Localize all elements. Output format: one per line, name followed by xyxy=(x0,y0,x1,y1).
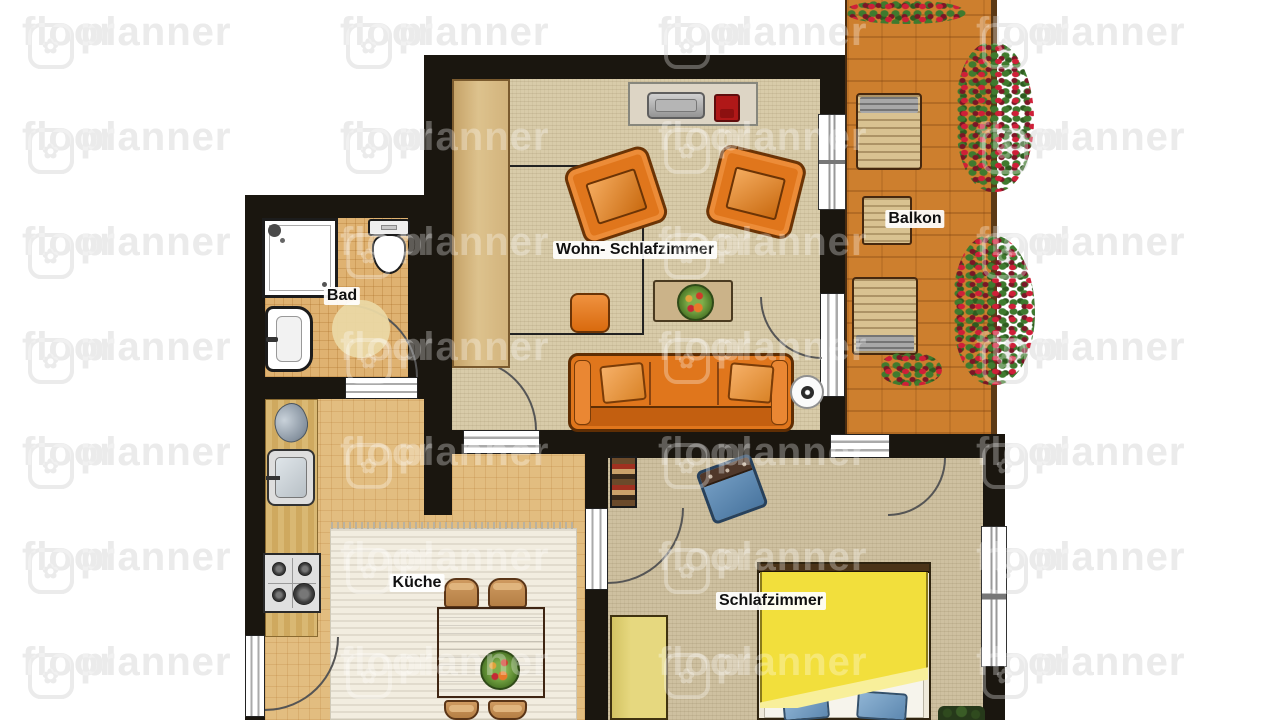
lounger-cushion xyxy=(860,97,918,113)
watermark: floor✿planner xyxy=(22,430,80,489)
toilet-bowl xyxy=(372,234,406,274)
room-label-bedroom: Schlafzimmer xyxy=(716,592,826,610)
shower-head-icon xyxy=(268,224,281,237)
balcony-lounger xyxy=(856,93,922,170)
floorplanner-logo-icon: ✿ xyxy=(28,653,74,699)
floorplanner-logo-icon: ✿ xyxy=(28,128,74,174)
watermark: floor✿planner xyxy=(22,10,80,69)
floorplanner-logo-icon: ✿ xyxy=(28,233,74,279)
sofa-pillow xyxy=(727,362,774,404)
sofa-back xyxy=(575,406,787,426)
burner xyxy=(293,583,315,605)
kitchen-sink xyxy=(267,449,315,506)
floorplanner-logo-icon: ✿ xyxy=(28,653,74,699)
floorplan-canvas: Wohn- Schlafzimmer Balkon Bad Küche Schl… xyxy=(0,0,1280,720)
watermark: floor✿planner xyxy=(22,640,80,699)
room-label-balcony: Balkon xyxy=(885,210,944,228)
wall xyxy=(245,377,345,399)
watermark: floor✿planner xyxy=(340,10,398,69)
watermark: floor✿planner xyxy=(340,10,398,69)
bed xyxy=(757,562,931,720)
wall xyxy=(890,434,1005,458)
sideboard xyxy=(628,82,758,126)
faucet-icon xyxy=(266,476,280,480)
floorplanner-logo-icon: ✿ xyxy=(28,233,74,279)
wall xyxy=(428,55,845,79)
burner xyxy=(272,588,286,602)
wall xyxy=(983,458,1005,530)
lounger-cushion xyxy=(856,335,914,351)
room-label-living: Wohn- Schlafzimmer xyxy=(553,241,717,259)
wall xyxy=(424,55,452,515)
flower-planter xyxy=(956,42,1034,192)
flower-planter xyxy=(880,352,942,386)
watermark: floor✿planner xyxy=(22,640,80,699)
floorplanner-logo-icon: ✿ xyxy=(346,128,392,174)
door-living xyxy=(463,430,540,454)
stove xyxy=(263,553,321,613)
burner xyxy=(298,562,312,576)
watermark: floor✿planner xyxy=(340,115,398,174)
door-bathroom xyxy=(345,377,418,399)
plant xyxy=(938,706,985,720)
watermark: floor✿planner xyxy=(22,325,80,384)
armchair-cushion xyxy=(585,168,648,225)
floorplanner-logo-icon: ✿ xyxy=(346,128,392,174)
floorplanner-logo-icon: ✿ xyxy=(28,23,74,69)
fruit-bowl xyxy=(677,284,714,321)
watermark: floor✿planner xyxy=(22,535,80,594)
balcony-lounger xyxy=(852,277,918,355)
door-kitchen xyxy=(245,635,265,717)
wall xyxy=(585,434,830,458)
floorplanner-logo-icon: ✿ xyxy=(346,23,392,69)
watermark: floor✿planner xyxy=(22,220,80,279)
window-living xyxy=(818,114,846,210)
floorplanner-logo-icon: ✿ xyxy=(28,23,74,69)
floorplanner-logo-icon: ✿ xyxy=(28,338,74,384)
wall xyxy=(585,458,608,508)
fruit-bowl xyxy=(480,650,520,690)
round-speaker xyxy=(790,375,824,409)
watermark: floor✿planner xyxy=(22,115,80,174)
sofa-arm xyxy=(574,360,591,425)
dining-chair xyxy=(444,578,479,608)
door-balcony-bedroom xyxy=(830,434,890,458)
bedroom-shelf xyxy=(610,456,637,508)
bed-pillow xyxy=(856,690,908,720)
floorplanner-logo-icon: ✿ xyxy=(346,23,392,69)
watermark: floor✿planner xyxy=(22,220,80,279)
floorplanner-logo-icon: ✿ xyxy=(28,443,74,489)
dining-table xyxy=(437,607,545,698)
floorplanner-logo-icon: ✿ xyxy=(28,548,74,594)
floorplanner-logo-icon: ✿ xyxy=(28,443,74,489)
wall xyxy=(820,208,845,293)
floorplanner-logo-icon: ✿ xyxy=(28,128,74,174)
wall xyxy=(245,195,430,218)
living-wardrobe xyxy=(452,79,510,368)
sofa xyxy=(568,353,794,432)
toilet xyxy=(368,219,410,275)
wall xyxy=(983,663,1005,720)
dining-chair xyxy=(488,700,527,720)
sofa-seam xyxy=(717,362,719,405)
burner xyxy=(272,562,286,576)
wall xyxy=(820,55,845,116)
watermark: floor✿planner xyxy=(22,10,80,69)
door-balcony-living xyxy=(820,293,845,397)
wall xyxy=(820,397,845,434)
watermark: floor✿planner xyxy=(22,535,80,594)
tv-tray xyxy=(647,92,705,119)
wall xyxy=(585,590,608,720)
sofa-seam xyxy=(649,362,651,405)
flower-planter xyxy=(846,0,966,24)
armchair-cushion xyxy=(725,166,786,220)
floorplanner-logo-icon: ✿ xyxy=(28,548,74,594)
flower-planter xyxy=(953,235,1035,385)
door-bedroom xyxy=(585,508,608,590)
bathroom-sink xyxy=(265,306,313,372)
bedroom-wardrobe xyxy=(610,615,668,720)
dining-chair xyxy=(488,578,527,608)
ottoman xyxy=(570,293,610,333)
watermark: floor✿planner xyxy=(22,115,80,174)
coffee-table xyxy=(653,280,733,322)
sofa-pillow xyxy=(599,362,647,404)
window-bedroom xyxy=(981,526,1007,667)
watermark: floor✿planner xyxy=(22,325,80,384)
red-pot xyxy=(714,94,740,122)
watermark: floor✿planner xyxy=(340,115,398,174)
floorplanner-logo-icon: ✿ xyxy=(28,338,74,384)
bed-footboard xyxy=(759,564,929,573)
dining-chair xyxy=(444,700,479,720)
shower xyxy=(262,218,338,298)
wall xyxy=(452,430,463,454)
room-label-bathroom: Bad xyxy=(324,287,360,305)
faucet-icon xyxy=(266,337,278,342)
room-label-kitchen: Küche xyxy=(390,574,445,592)
bath-round-rug xyxy=(332,300,390,358)
watermark: floor✿planner xyxy=(22,430,80,489)
